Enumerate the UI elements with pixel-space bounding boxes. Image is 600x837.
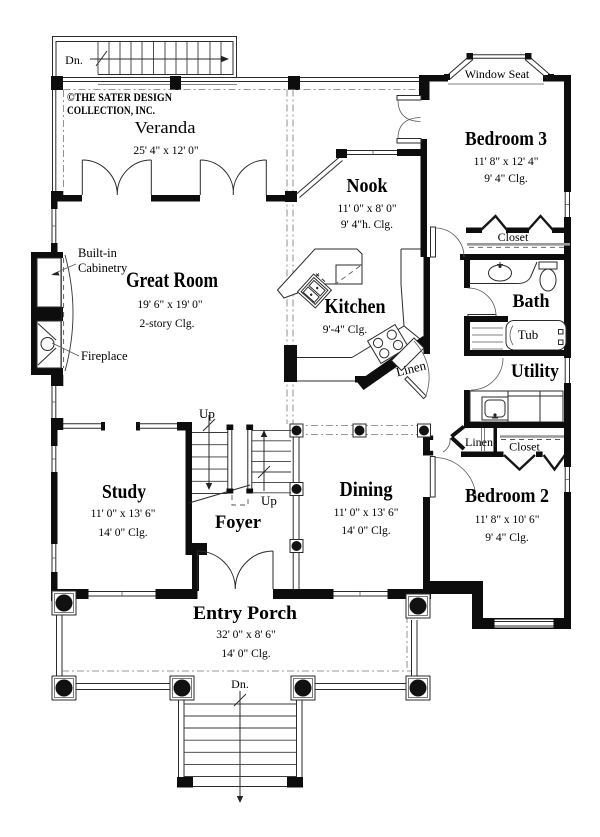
svg-text:COLLECTION, INC.: COLLECTION, INC. — [67, 105, 155, 117]
svg-text:Cabinetry: Cabinetry — [78, 261, 128, 275]
svg-text:14' 0" Clg.: 14' 0" Clg. — [221, 648, 270, 660]
svg-text:Dining: Dining — [340, 477, 393, 501]
svg-text:32' 0" x 8' 6": 32' 0" x 8' 6" — [216, 629, 276, 641]
svg-text:Fireplace: Fireplace — [81, 349, 128, 363]
svg-text:Kitchen: Kitchen — [325, 294, 386, 318]
svg-text:Linen: Linen — [465, 435, 493, 449]
svg-text:Closet: Closet — [498, 230, 529, 244]
svg-text:Foyer: Foyer — [215, 512, 262, 533]
svg-text:Up: Up — [199, 406, 215, 421]
svg-text:11' 8" x 10' 6": 11' 8" x 10' 6" — [475, 514, 540, 526]
svg-text:Window Seat: Window Seat — [465, 67, 530, 81]
svg-text:9' 4"h. Clg.: 9' 4"h. Clg. — [341, 219, 393, 231]
svg-text:14' 0" Clg.: 14' 0" Clg. — [98, 527, 147, 539]
svg-text:9' 4" Clg.: 9' 4" Clg. — [484, 173, 528, 185]
svg-text:Tub: Tub — [518, 327, 538, 342]
svg-text:Dn.: Dn. — [65, 53, 83, 67]
svg-text:25' 4" x 12' 0": 25' 4" x 12' 0" — [133, 145, 198, 157]
svg-text:Bedroom 3: Bedroom 3 — [465, 128, 547, 150]
svg-text:9'-4" Clg.: 9'-4" Clg. — [323, 324, 368, 336]
svg-text:Veranda: Veranda — [135, 118, 196, 137]
svg-text:Dn.: Dn. — [231, 677, 249, 691]
svg-text:19' 6" x 19' 0": 19' 6" x 19' 0" — [137, 299, 202, 311]
svg-text:Nook: Nook — [347, 175, 389, 197]
svg-text:Utility: Utility — [511, 361, 559, 382]
svg-text:Up: Up — [261, 493, 277, 508]
svg-text:Bath: Bath — [513, 291, 550, 312]
svg-text:2-story Clg.: 2-story Clg. — [140, 318, 195, 330]
svg-text:Great Room: Great Room — [126, 267, 218, 292]
svg-text:14' 0" Clg.: 14' 0" Clg. — [341, 525, 390, 537]
svg-text:Entry Porch: Entry Porch — [193, 604, 298, 624]
svg-text:11' 0" x 13' 6": 11' 0" x 13' 6" — [91, 508, 156, 520]
svg-text:Closet: Closet — [509, 440, 540, 454]
svg-text:Bedroom 2: Bedroom 2 — [465, 485, 549, 507]
svg-text:Study: Study — [102, 481, 146, 503]
svg-text:11' 0" x 8' 0": 11' 0" x 8' 0" — [337, 203, 396, 215]
svg-text:©THE SATER DESIGN: ©THE SATER DESIGN — [67, 92, 173, 104]
svg-text:Built-in: Built-in — [78, 246, 118, 260]
svg-text:9' 4" Clg.: 9' 4" Clg. — [485, 532, 529, 544]
svg-text:11' 8" x 12' 4": 11' 8" x 12' 4" — [474, 156, 539, 168]
svg-text:11' 0" x 13' 6": 11' 0" x 13' 6" — [334, 507, 399, 519]
